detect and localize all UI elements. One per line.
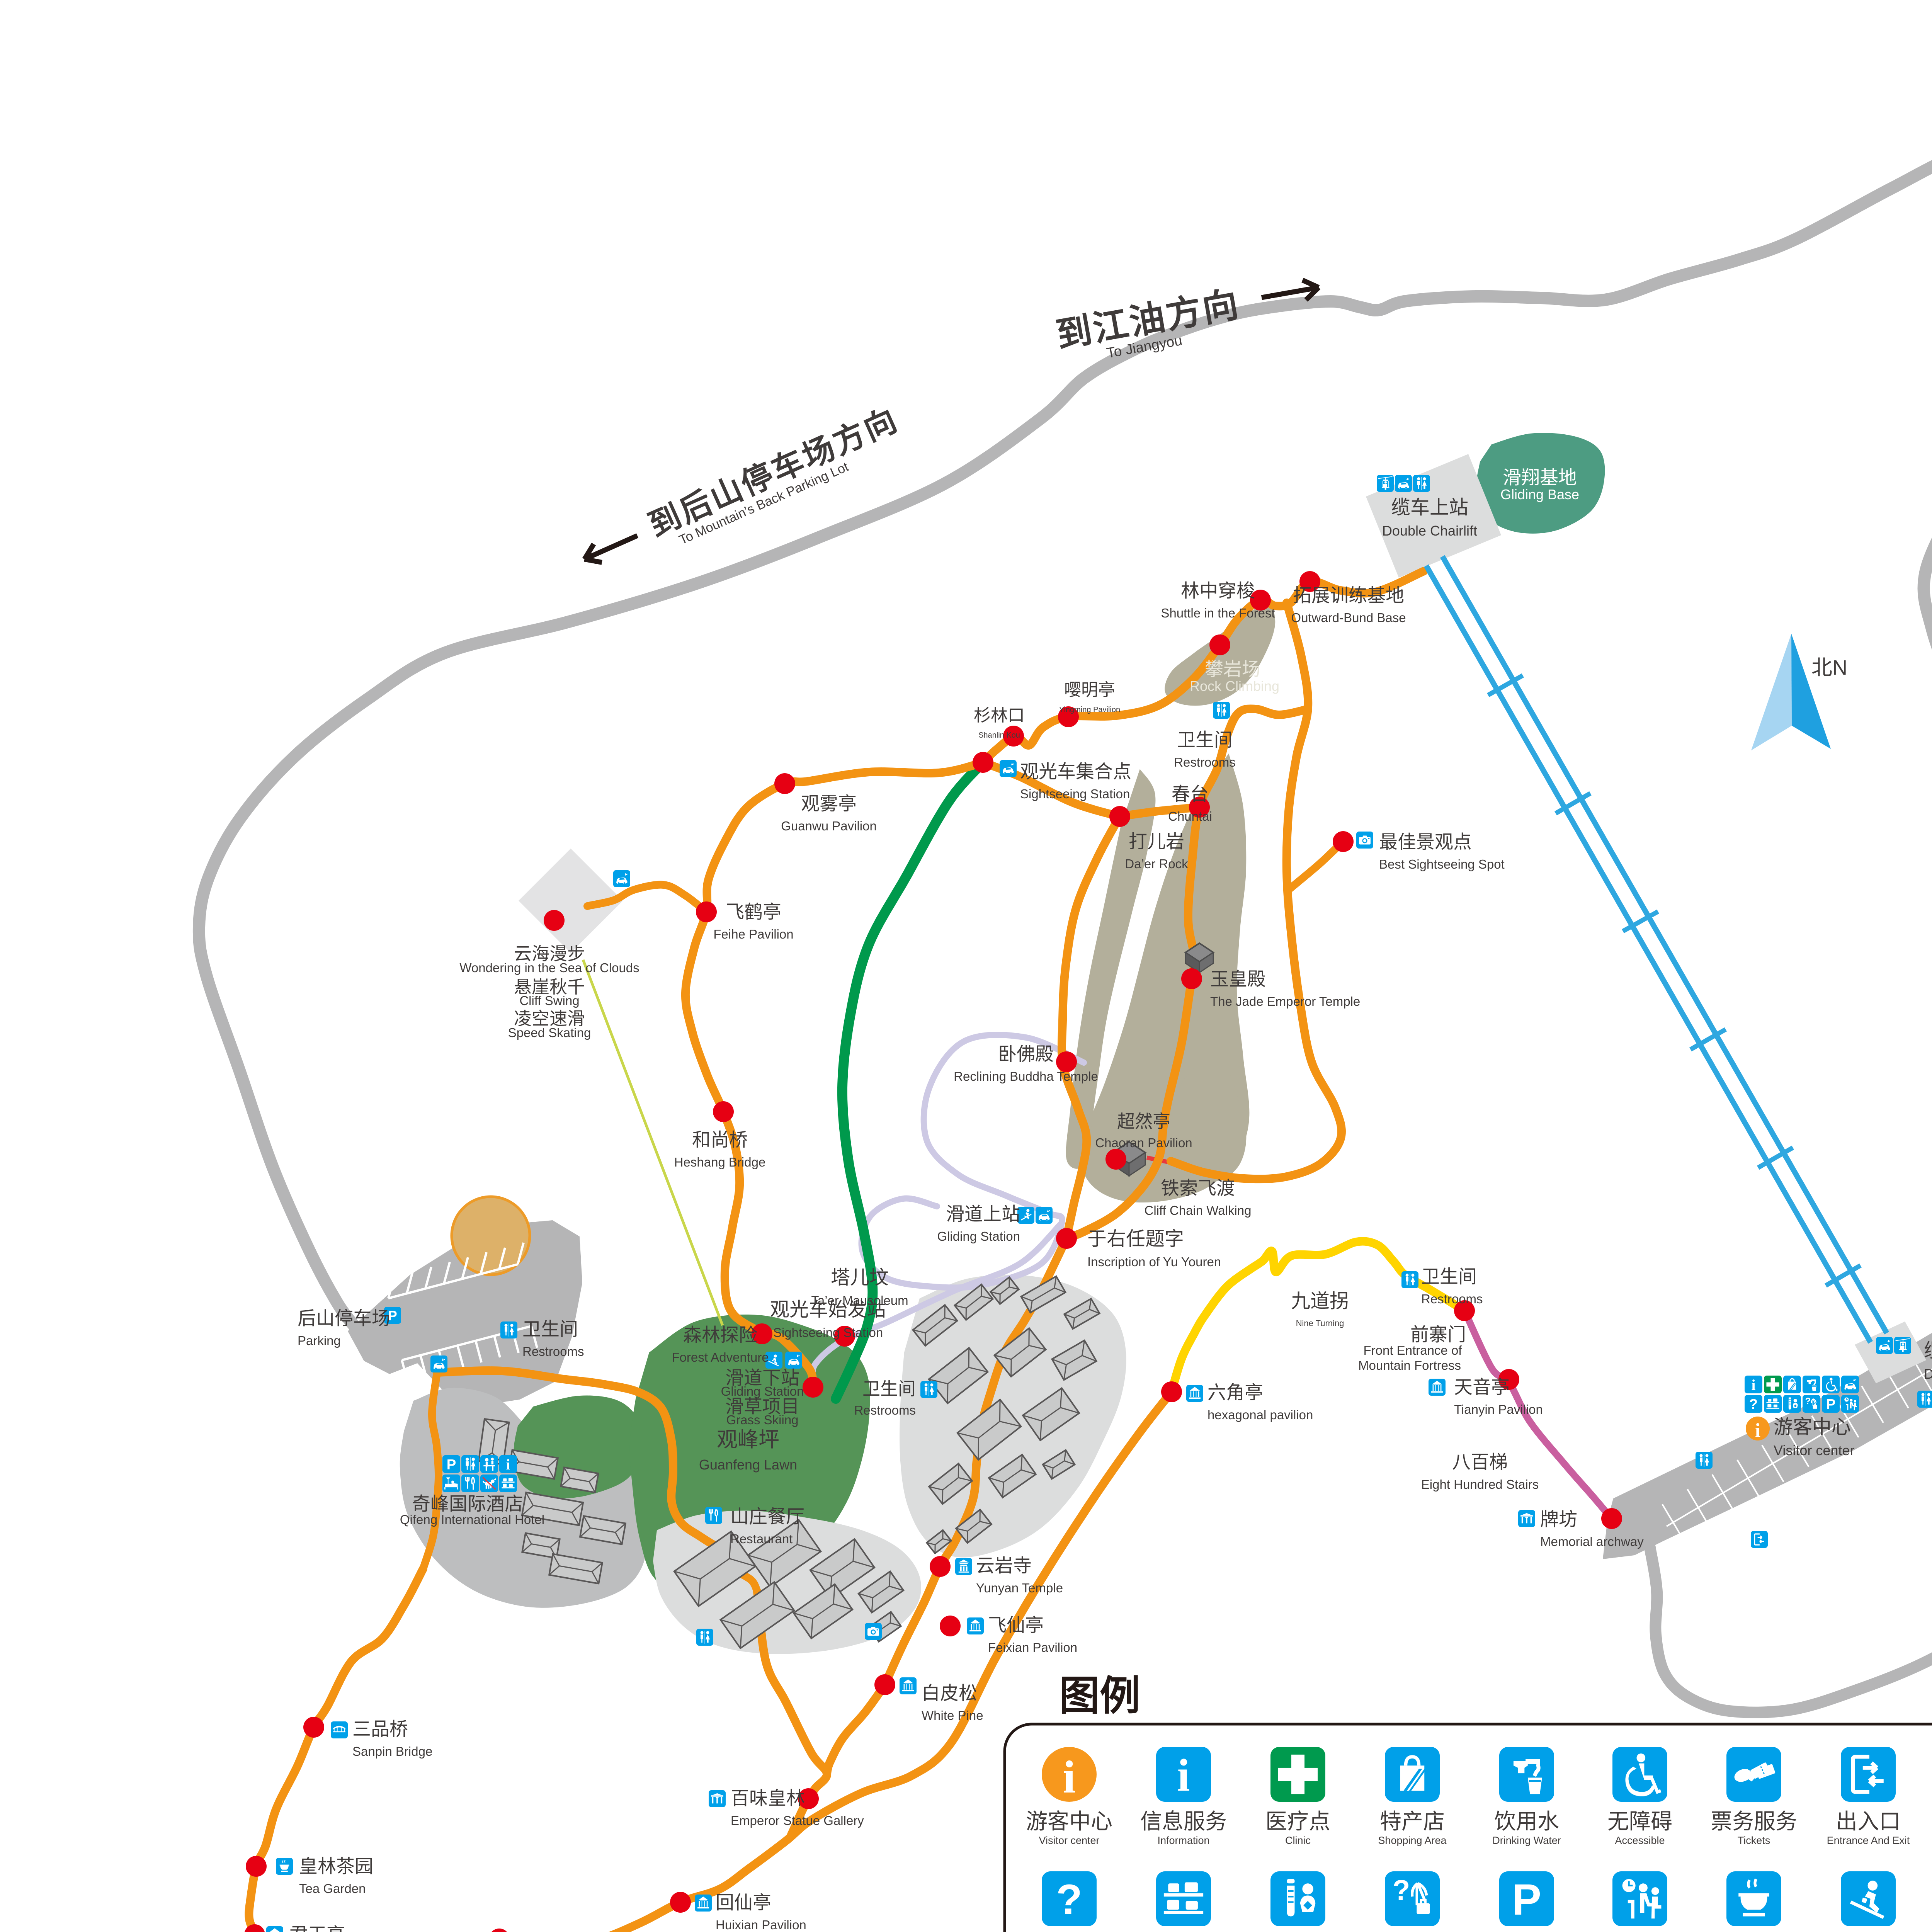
svg-text:Heshang Bridge: Heshang Bridge	[674, 1155, 766, 1169]
svg-text:Huixian Pavilion: Huixian Pavilion	[716, 1918, 806, 1932]
svg-text:Restrooms: Restrooms	[854, 1403, 916, 1417]
svg-text:回仙亭: 回仙亭	[716, 1893, 771, 1913]
svg-text:六角亭: 六角亭	[1207, 1383, 1263, 1403]
svg-text:百味皇林: 百味皇林	[731, 1788, 805, 1809]
svg-text:Eight Hundred Stairs: Eight Hundred Stairs	[1421, 1477, 1539, 1492]
svg-text:Da’er Rock: Da’er Rock	[1125, 857, 1188, 871]
svg-text:Shopping Area: Shopping Area	[1378, 1835, 1447, 1846]
svg-text:无障碍: 无障碍	[1607, 1809, 1672, 1833]
svg-text:滑翔基地: 滑翔基地	[1503, 468, 1577, 488]
svg-text:Reclining Buddha Temple: Reclining Buddha Temple	[954, 1069, 1098, 1083]
svg-text:Qifeng International Hotel: Qifeng International Hotel	[400, 1512, 544, 1527]
svg-text:Guanwu Pavilion: Guanwu Pavilion	[781, 819, 877, 833]
svg-text:游客中心: 游客中心	[1026, 1809, 1112, 1833]
svg-text:图例: 图例	[1059, 1673, 1140, 1719]
svg-text:Tickets: Tickets	[1738, 1835, 1770, 1846]
svg-text:拓展训练基地: 拓展训练基地	[1293, 585, 1404, 606]
svg-text:Gliding Base: Gliding Base	[1500, 486, 1579, 502]
svg-text:游客中心: 游客中心	[1774, 1416, 1851, 1438]
svg-text:Entrance And Exit: Entrance And Exit	[1827, 1835, 1910, 1846]
svg-text:Double Chairlift: Double Chairlift	[1924, 1366, 1932, 1382]
svg-text:Restrooms: Restrooms	[522, 1344, 584, 1359]
svg-text:最佳景观点: 最佳景观点	[1379, 832, 1472, 852]
svg-text:Feihe Pavilion: Feihe Pavilion	[713, 927, 793, 941]
svg-text:前寨门: 前寨门	[1410, 1325, 1466, 1345]
svg-text:Shuttle in the Forest: Shuttle in the Forest	[1161, 606, 1275, 620]
svg-text:Guanfeng Lawn: Guanfeng Lawn	[699, 1457, 797, 1473]
svg-text:医疗点: 医疗点	[1265, 1809, 1330, 1833]
svg-text:观光车集合点: 观光车集合点	[1020, 762, 1131, 782]
svg-text:山庄餐厅: 山庄餐厅	[730, 1507, 804, 1527]
svg-text:Visitor center: Visitor center	[1774, 1442, 1854, 1458]
svg-text:Outward-Bund Base: Outward-Bund Base	[1291, 611, 1406, 625]
svg-text:打儿岩: 打儿岩	[1129, 832, 1184, 852]
svg-text:Double Chairlift: Double Chairlift	[1382, 523, 1477, 539]
svg-text:Information: Information	[1157, 1835, 1209, 1846]
svg-text:森林探险: 森林探险	[683, 1325, 757, 1345]
svg-text:塔儿坟: 塔儿坟	[831, 1267, 889, 1288]
svg-text:票务服务: 票务服务	[1711, 1809, 1797, 1833]
svg-text:卫生间: 卫生间	[522, 1319, 578, 1340]
svg-text:Cliff Swing: Cliff Swing	[519, 993, 579, 1008]
svg-text:hexagonal pavilion: hexagonal pavilion	[1207, 1408, 1313, 1422]
svg-text:卧佛殿: 卧佛殿	[998, 1044, 1054, 1065]
svg-text:九道拐: 九道拐	[1291, 1290, 1349, 1312]
svg-text:玉皇殿: 玉皇殿	[1210, 969, 1266, 990]
svg-text:牌坊: 牌坊	[1540, 1509, 1577, 1530]
svg-text:Wondering in the Sea of Clouds: Wondering in the Sea of Clouds	[459, 961, 639, 975]
svg-text:信息服务: 信息服务	[1140, 1809, 1227, 1833]
svg-text:攀岩场: 攀岩场	[1205, 659, 1260, 680]
svg-text:云岩寺: 云岩寺	[976, 1556, 1032, 1576]
svg-text:飞仙亭: 飞仙亭	[988, 1615, 1044, 1636]
svg-text:Tea Garden: Tea Garden	[299, 1881, 366, 1896]
svg-text:Chaoran Pavilion: Chaoran Pavilion	[1095, 1136, 1192, 1150]
svg-text:观峰坪: 观峰坪	[717, 1428, 779, 1451]
svg-text:Tianyin Pavilion: Tianyin Pavilion	[1454, 1402, 1543, 1417]
svg-text:缆车上站: 缆车上站	[1391, 497, 1468, 518]
svg-text:Rock Climbing: Rock Climbing	[1190, 678, 1279, 694]
svg-text:后山停车场: 后山停车场	[298, 1308, 390, 1329]
svg-text:皇林茶园: 皇林茶园	[299, 1856, 373, 1877]
svg-text:缆车下站: 缆车下站	[1924, 1340, 1932, 1361]
svg-text:Gliding Station: Gliding Station	[937, 1229, 1020, 1243]
svg-text:Memorial archway: Memorial archway	[1540, 1534, 1644, 1549]
svg-text:特产店: 特产店	[1380, 1809, 1445, 1833]
svg-text:Grass Skiing: Grass Skiing	[726, 1413, 798, 1427]
svg-text:杉林口: 杉林口	[974, 706, 1025, 725]
svg-text:Restrooms: Restrooms	[1174, 755, 1236, 769]
svg-text:林中穿梭: 林中穿梭	[1181, 581, 1255, 601]
svg-text:Best Sightseeing Spot: Best Sightseeing Spot	[1379, 857, 1505, 871]
svg-text:Mountain Fortress: Mountain Fortress	[1358, 1358, 1461, 1372]
svg-text:Sanpin Bridge: Sanpin Bridge	[352, 1744, 432, 1759]
svg-text:春台: 春台	[1172, 784, 1209, 804]
svg-text:Restrooms: Restrooms	[1421, 1292, 1483, 1306]
svg-text:Clinic: Clinic	[1285, 1835, 1311, 1846]
svg-text:铁索飞渡: 铁索飞渡	[1161, 1178, 1235, 1199]
svg-text:卫生间: 卫生间	[1421, 1267, 1477, 1287]
svg-text:观雾亭: 观雾亭	[801, 794, 857, 814]
svg-text:嘤明亭: 嘤明亭	[1064, 680, 1115, 699]
svg-text:Sightseeing Station: Sightseeing Station	[1020, 787, 1130, 801]
svg-text:Drinking Water: Drinking Water	[1492, 1835, 1561, 1846]
svg-text:观光车始发站: 观光车始发站	[770, 1299, 886, 1320]
svg-text:Chuntai: Chuntai	[1168, 809, 1212, 823]
svg-text:Inscription of Yu Youren: Inscription of Yu Youren	[1087, 1255, 1221, 1269]
svg-text:飞鹤亭: 飞鹤亭	[726, 902, 781, 922]
svg-text:超然亭: 超然亭	[1117, 1111, 1170, 1131]
svg-text:于右任题字: 于右任题字	[1087, 1228, 1184, 1250]
svg-text:天音亭: 天音亭	[1454, 1377, 1510, 1398]
svg-text:奇峰国际酒店: 奇峰国际酒店	[412, 1494, 523, 1514]
svg-text:滑道上站: 滑道上站	[946, 1204, 1020, 1225]
svg-text:和尚桥: 和尚桥	[692, 1130, 748, 1150]
svg-text:北N: 北N	[1811, 656, 1847, 679]
svg-text:Parking: Parking	[298, 1333, 341, 1348]
svg-text:三品桥: 三品桥	[352, 1719, 408, 1740]
svg-text:Shanlin Kou: Shanlin Kou	[978, 731, 1020, 740]
svg-text:Yingming Pavilion: Yingming Pavilion	[1059, 706, 1120, 714]
svg-text:白皮松: 白皮松	[922, 1683, 977, 1704]
svg-text:八百梯: 八百梯	[1452, 1452, 1508, 1473]
svg-text:The Jade Emperor Temple: The Jade Emperor Temple	[1210, 994, 1360, 1009]
svg-text:Visitor center: Visitor center	[1039, 1835, 1099, 1846]
svg-text:Forest Adventure: Forest Adventure	[672, 1350, 769, 1364]
svg-text:Front Entrance of: Front Entrance of	[1364, 1343, 1463, 1357]
svg-text:君王亭: 君王亭	[289, 1925, 345, 1932]
svg-text:Speed Skating: Speed Skating	[508, 1026, 591, 1040]
svg-text:出入口: 出入口	[1836, 1809, 1901, 1833]
svg-text:i: i	[1755, 1420, 1760, 1442]
svg-text:Yunyan Temple: Yunyan Temple	[976, 1581, 1063, 1595]
svg-text:Emperor Statue Gallery: Emperor Statue Gallery	[731, 1813, 864, 1828]
svg-text:i: i	[1063, 1751, 1075, 1803]
svg-text:饮用水: 饮用水	[1494, 1809, 1559, 1833]
svg-text:卫生间: 卫生间	[862, 1379, 916, 1399]
svg-text:Feixian Pavilion: Feixian Pavilion	[988, 1640, 1077, 1655]
svg-text:Sightseeing Station: Sightseeing Station	[773, 1325, 883, 1340]
svg-text:White Pine: White Pine	[922, 1708, 983, 1723]
svg-text:卫生间: 卫生间	[1177, 730, 1233, 750]
svg-text:Restaurant: Restaurant	[730, 1532, 793, 1546]
svg-text:Nine Turning: Nine Turning	[1296, 1318, 1344, 1328]
svg-text:Accessible: Accessible	[1615, 1835, 1665, 1846]
svg-text:Cliff Chain Walking: Cliff Chain Walking	[1145, 1203, 1252, 1218]
